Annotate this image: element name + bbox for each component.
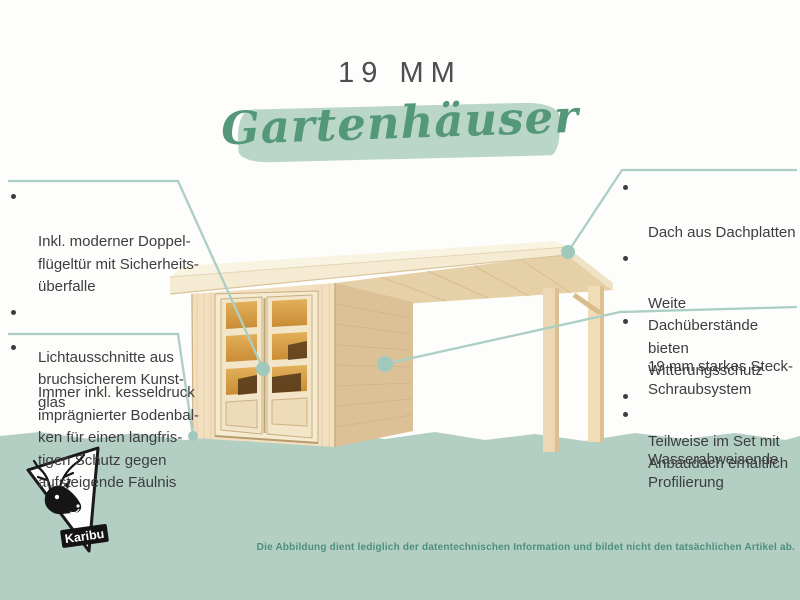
bullet-icon [623, 256, 628, 261]
infographic: Karibu 19 MM Gartenhäuser Inkl. moderner… [0, 0, 800, 600]
callout-group-wall: 19 mm starkes Steck- Schraubsystem Wasse… [616, 311, 800, 497]
dot-roof [561, 245, 575, 259]
callout-item: Immer inkl. kesseldruck imprägnierter Bo… [0, 337, 210, 495]
canopy-posts [543, 286, 604, 452]
callout-text: Inkl. moderner Doppel- flügeltür mit Sic… [38, 233, 199, 295]
size-label: 19 MM [0, 57, 800, 90]
callout-item: Inkl. moderner Doppel- flügeltür mit Sic… [0, 186, 210, 299]
bullet-icon [623, 185, 628, 190]
callout-group-foundation: Immer inkl. kesseldruck imprägnierter Bo… [0, 337, 210, 498]
dot-wall [377, 356, 393, 372]
bullet-icon [623, 412, 628, 417]
callout-text: Immer inkl. kesseldruck imprägnierter Bo… [38, 384, 199, 491]
bullet-icon [11, 345, 16, 350]
callout-item: Dach aus Dachplatten [616, 177, 800, 245]
side-wall [335, 283, 413, 447]
callout-text: Wasserabweisende Profilierung [648, 451, 778, 491]
disclaimer-text: Die Abbildung dient lediglich der datent… [257, 542, 795, 553]
dot-door [256, 362, 270, 376]
bullet-icon [11, 310, 16, 315]
callout-text: 19 mm starkes Steck- Schraubsystem [648, 358, 793, 398]
garden-house [170, 241, 613, 452]
callout-item: 19 mm starkes Steck- Schraubsystem [616, 311, 800, 401]
bullet-icon [623, 319, 628, 324]
callout-text: Dach aus Dachplatten [648, 224, 796, 241]
bullet-icon [11, 194, 16, 199]
callout-item: Wasserabweisende Profilierung [616, 404, 800, 494]
